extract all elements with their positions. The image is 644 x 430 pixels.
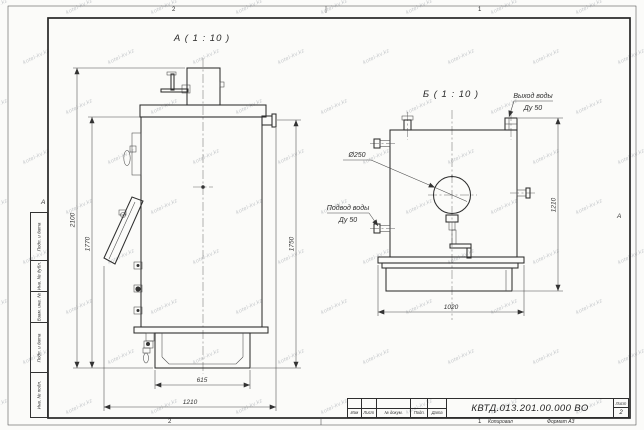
gost-side-strip: Подп. и дата Инв. № дубл. Взам. инв. № П… [30, 212, 48, 418]
side-stub-right [510, 188, 536, 198]
view-a: А ( 1 : 10 ) [70, 33, 302, 411]
side-stub-left-upper [370, 139, 396, 148]
dimension-2100: 2100 [70, 68, 186, 368]
strip-label: Подп. и дата [37, 222, 42, 251]
zone-number-bottom-left: 2 [168, 419, 171, 425]
sheet-label: Лист [614, 399, 628, 408]
strip-cell: Инв. № подл. [31, 373, 47, 417]
col-izm: Изм [348, 409, 362, 418]
grid-cell [411, 399, 428, 408]
footer-copied-label: Копировал [488, 419, 513, 425]
dimension-1210-a: 1210 [104, 128, 276, 411]
water-outlet-label: Выход воды Ду 50 [509, 92, 554, 117]
fold-mark-right: А [617, 213, 621, 220]
base-plates-b [378, 257, 524, 291]
drain-valve [446, 215, 471, 258]
svg-text:Ду 50: Ду 50 [523, 105, 542, 112]
view-b-title: Б ( 1 : 10 ) [423, 89, 479, 100]
svg-text:1210: 1210 [183, 399, 198, 406]
svg-text:1210: 1210 [551, 197, 558, 212]
svg-text:Подвод воды: Подвод воды [327, 204, 370, 212]
ash-door-latch [143, 333, 154, 363]
sheet-frame [8, 6, 636, 425]
water-inlet-label: Подвод воды Ду 50 [327, 204, 378, 226]
title-block-revision-grid: Изм Лист № докум. Подп. Дата [348, 399, 447, 417]
col-podp: Подп. [411, 409, 428, 418]
svg-text:Ду 50: Ду 50 [338, 217, 357, 224]
boiler-body-front [141, 117, 262, 327]
zone-number-bottom-right: 1 [478, 419, 481, 425]
strip-cell: Инв. № дубл. [31, 261, 47, 292]
sheet-number-cell: Лист 2 [613, 399, 628, 417]
svg-text:2100: 2100 [70, 212, 77, 228]
strip-cell: Подп. и дата [31, 213, 47, 261]
zone-number-top-left: 2 [172, 7, 175, 13]
strip-label: Инв. № дубл. [37, 262, 42, 290]
view-b: Б ( 1 : 10 ) [327, 89, 563, 320]
pipe-stub-top-left-b [402, 112, 413, 140]
strip-label: Взам. инв. № [37, 293, 42, 321]
fold-mark-left: А [41, 199, 45, 206]
dimension-615: 615 [155, 370, 250, 389]
strip-cell: Подп. и дата [31, 323, 47, 373]
loading-chute [104, 197, 143, 264]
zone-number-top-right: 1 [478, 7, 481, 13]
sheet-number: 2 [614, 408, 628, 417]
boiler-body-rear [390, 130, 517, 257]
strip-cell: Взам. инв. № [31, 292, 47, 323]
chimney-stack [161, 68, 224, 105]
dimension-1210-b: 1210 [513, 118, 563, 291]
view-a-title: А ( 1 : 10 ) [173, 33, 230, 44]
col-docnum: № докум. [377, 409, 412, 418]
water-outlet-stub [505, 112, 517, 140]
svg-text:Ø250: Ø250 [347, 152, 365, 159]
document-number: КВТД.013.201.00.000 ВО [447, 399, 613, 417]
svg-text:Выход воды: Выход воды [513, 92, 553, 100]
grid-cell [377, 399, 412, 408]
dimension-1770: 1770 [85, 117, 141, 368]
grid-cell [362, 399, 377, 408]
water-inlet-stub [370, 224, 396, 233]
col-list: Лист [362, 409, 377, 418]
drawing-sheet: { "sheet": { "watermark": "kotel-kv.kz",… [0, 0, 644, 430]
svg-text:1750: 1750 [289, 236, 296, 251]
upper-door-handle [124, 133, 141, 175]
svg-text:615: 615 [197, 377, 208, 384]
technical-drawing-svg: А ( 1 : 10 ) [0, 0, 644, 430]
grid-cell [348, 399, 362, 408]
svg-text:1770: 1770 [85, 236, 92, 251]
strip-label: Подп. и дата [37, 333, 42, 362]
strip-label: Инв. № подл. [37, 381, 42, 410]
grid-cell [428, 399, 446, 408]
svg-text:1020: 1020 [444, 304, 459, 311]
pipe-stub-top-right [262, 114, 276, 127]
title-block: Изм Лист № докум. Подп. Дата КВТД.013.20… [347, 398, 629, 418]
col-data: Дата [428, 409, 446, 418]
footer-format-label: Формат А3 [547, 419, 574, 425]
